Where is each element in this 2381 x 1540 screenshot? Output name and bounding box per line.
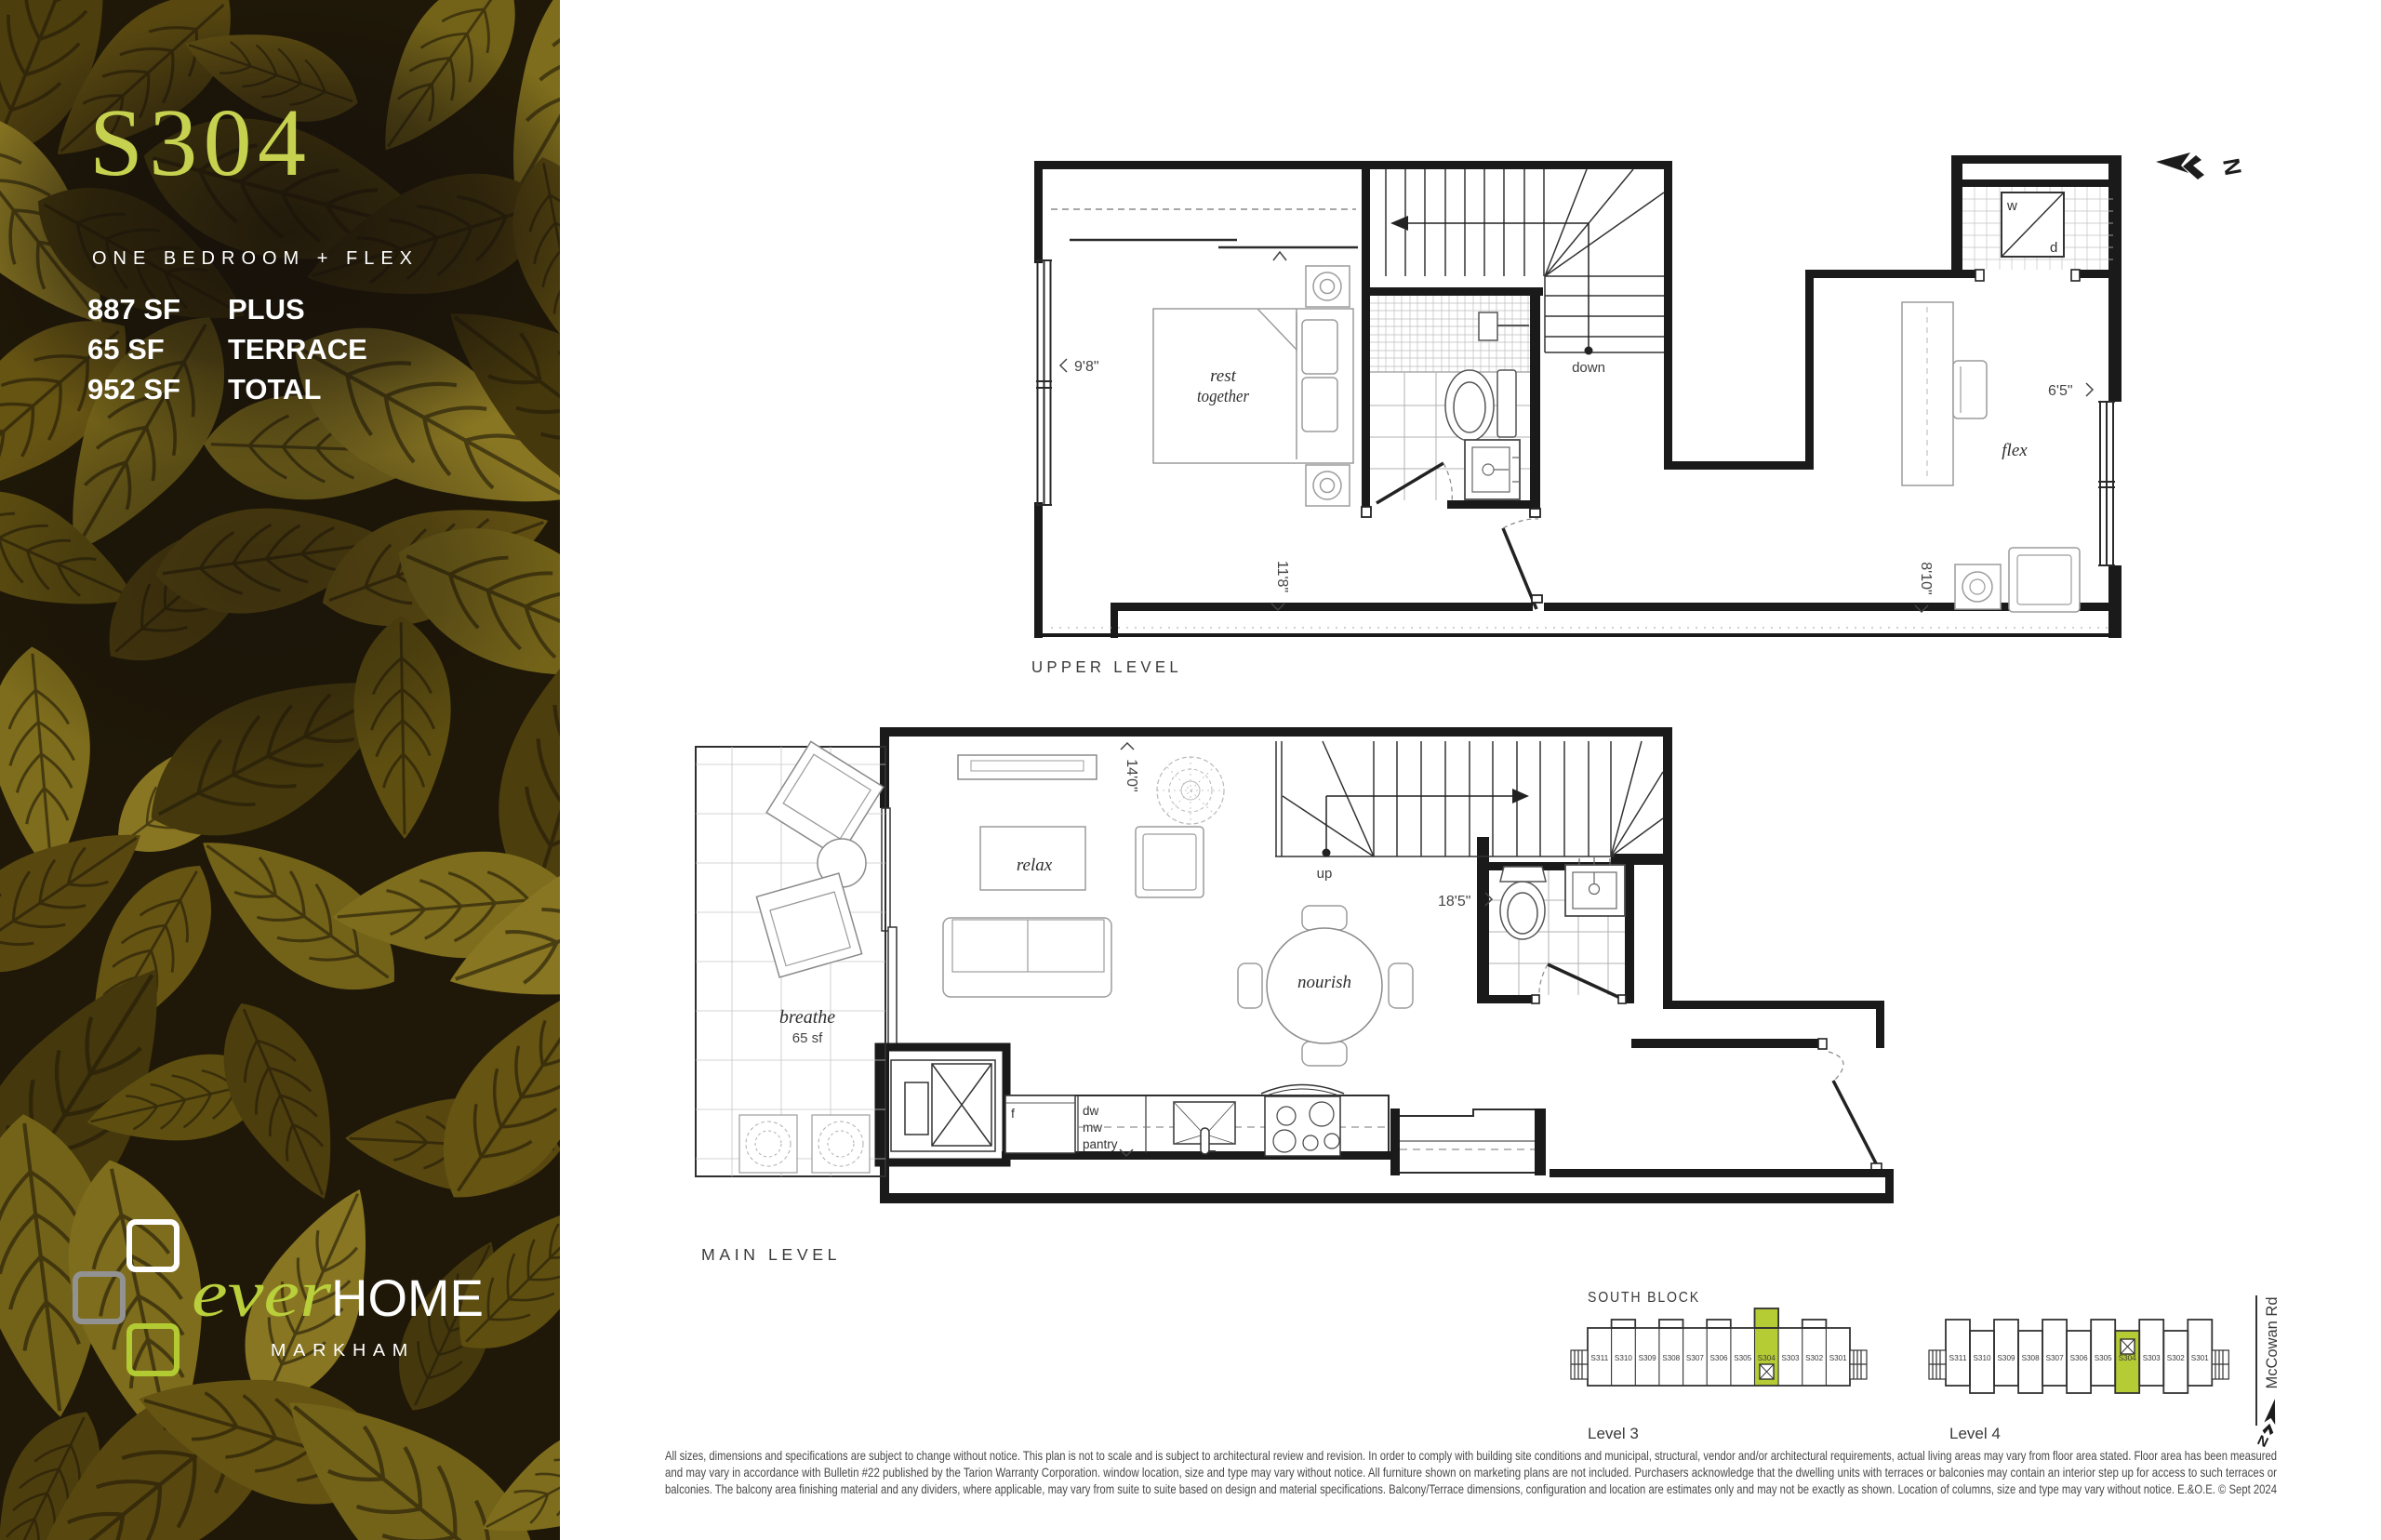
svg-text:MAIN LEVEL: MAIN LEVEL xyxy=(701,1245,841,1264)
svg-text:18'5": 18'5" xyxy=(1438,894,1470,909)
svg-text:TERRACE: TERRACE xyxy=(228,333,367,365)
svg-text:9'8": 9'8" xyxy=(1074,359,1099,375)
svg-text:S302: S302 xyxy=(2167,1353,2185,1362)
svg-text:All sizes, dimensions and spec: All sizes, dimensions and specifications… xyxy=(665,1448,2277,1463)
svg-text:S307: S307 xyxy=(1686,1353,1704,1362)
svg-text:S306: S306 xyxy=(1710,1353,1728,1362)
svg-text:S309: S309 xyxy=(1998,1353,2015,1362)
svg-text:and may vary in accordance wit: and may vary in accordance with Bulletin… xyxy=(665,1465,2277,1480)
svg-text:952 SF: 952 SF xyxy=(87,373,180,405)
svg-text:UPPER LEVEL: UPPER LEVEL xyxy=(1031,657,1182,676)
svg-text:65 SF: 65 SF xyxy=(87,333,165,365)
svg-text:S303: S303 xyxy=(1782,1353,1800,1362)
svg-text:8'10": 8'10" xyxy=(1918,562,1934,594)
svg-text:S308: S308 xyxy=(2022,1353,2040,1362)
svg-text:S309: S309 xyxy=(1639,1353,1656,1362)
svg-text:S305: S305 xyxy=(1734,1353,1751,1362)
svg-text:S305: S305 xyxy=(2095,1353,2112,1362)
svg-text:14'0": 14'0" xyxy=(1124,759,1139,791)
svg-text:S308: S308 xyxy=(1662,1353,1680,1362)
svg-text:together: together xyxy=(1197,387,1250,406)
svg-text:887 SF: 887 SF xyxy=(87,293,180,325)
svg-text:S304: S304 xyxy=(1758,1353,1776,1362)
svg-text:11'8": 11'8" xyxy=(1274,561,1290,592)
svg-text:f: f xyxy=(1011,1106,1015,1121)
svg-text:balconies. The balcony area fi: balconies. The balcony area finishing ma… xyxy=(665,1481,2277,1496)
svg-text:PLUS: PLUS xyxy=(228,293,305,325)
svg-text:TOTAL: TOTAL xyxy=(228,373,321,405)
svg-text:S301: S301 xyxy=(1829,1353,1847,1362)
svg-text:S311: S311 xyxy=(1949,1353,1967,1362)
svg-text:SOUTH BLOCK: SOUTH BLOCK xyxy=(1588,1290,1700,1306)
svg-text:d: d xyxy=(2050,240,2057,256)
svg-text:breathe: breathe xyxy=(779,1007,835,1028)
svg-text:rest: rest xyxy=(1210,366,1237,386)
svg-text:McCowan Rd: McCowan Rd xyxy=(2264,1296,2281,1388)
svg-text:down: down xyxy=(1572,360,1605,376)
svg-text:pantry: pantry xyxy=(1083,1137,1118,1151)
svg-text:relax: relax xyxy=(1017,856,1053,875)
svg-text:flex: flex xyxy=(2002,441,2028,460)
svg-text:S301: S301 xyxy=(2191,1353,2209,1362)
svg-text:ever: ever xyxy=(192,1256,332,1331)
svg-text:S307: S307 xyxy=(2046,1353,2064,1362)
svg-text:dw: dw xyxy=(1083,1104,1099,1118)
svg-text:N: N xyxy=(2217,156,2246,178)
svg-text:S302: S302 xyxy=(1805,1353,1823,1362)
svg-text:w: w xyxy=(2006,198,2017,214)
svg-text:S310: S310 xyxy=(1974,1353,1991,1362)
svg-text:Level 3: Level 3 xyxy=(1588,1425,1639,1442)
svg-text:6'5": 6'5" xyxy=(2048,383,2073,399)
svg-text:65 sf: 65 sf xyxy=(792,1030,823,1046)
svg-text:ONE BEDROOM + FLEX: ONE BEDROOM + FLEX xyxy=(92,248,418,269)
svg-text:HOME: HOME xyxy=(331,1268,484,1327)
svg-text:S311: S311 xyxy=(1590,1353,1608,1362)
svg-text:S306: S306 xyxy=(2070,1353,2088,1362)
svg-text:up: up xyxy=(1317,866,1333,882)
svg-text:Level 4: Level 4 xyxy=(1949,1425,2001,1442)
svg-text:S303: S303 xyxy=(2143,1353,2161,1362)
svg-text:S310: S310 xyxy=(1615,1353,1632,1362)
svg-text:MARKHAM: MARKHAM xyxy=(271,1341,415,1360)
svg-text:nourish: nourish xyxy=(1297,973,1351,992)
